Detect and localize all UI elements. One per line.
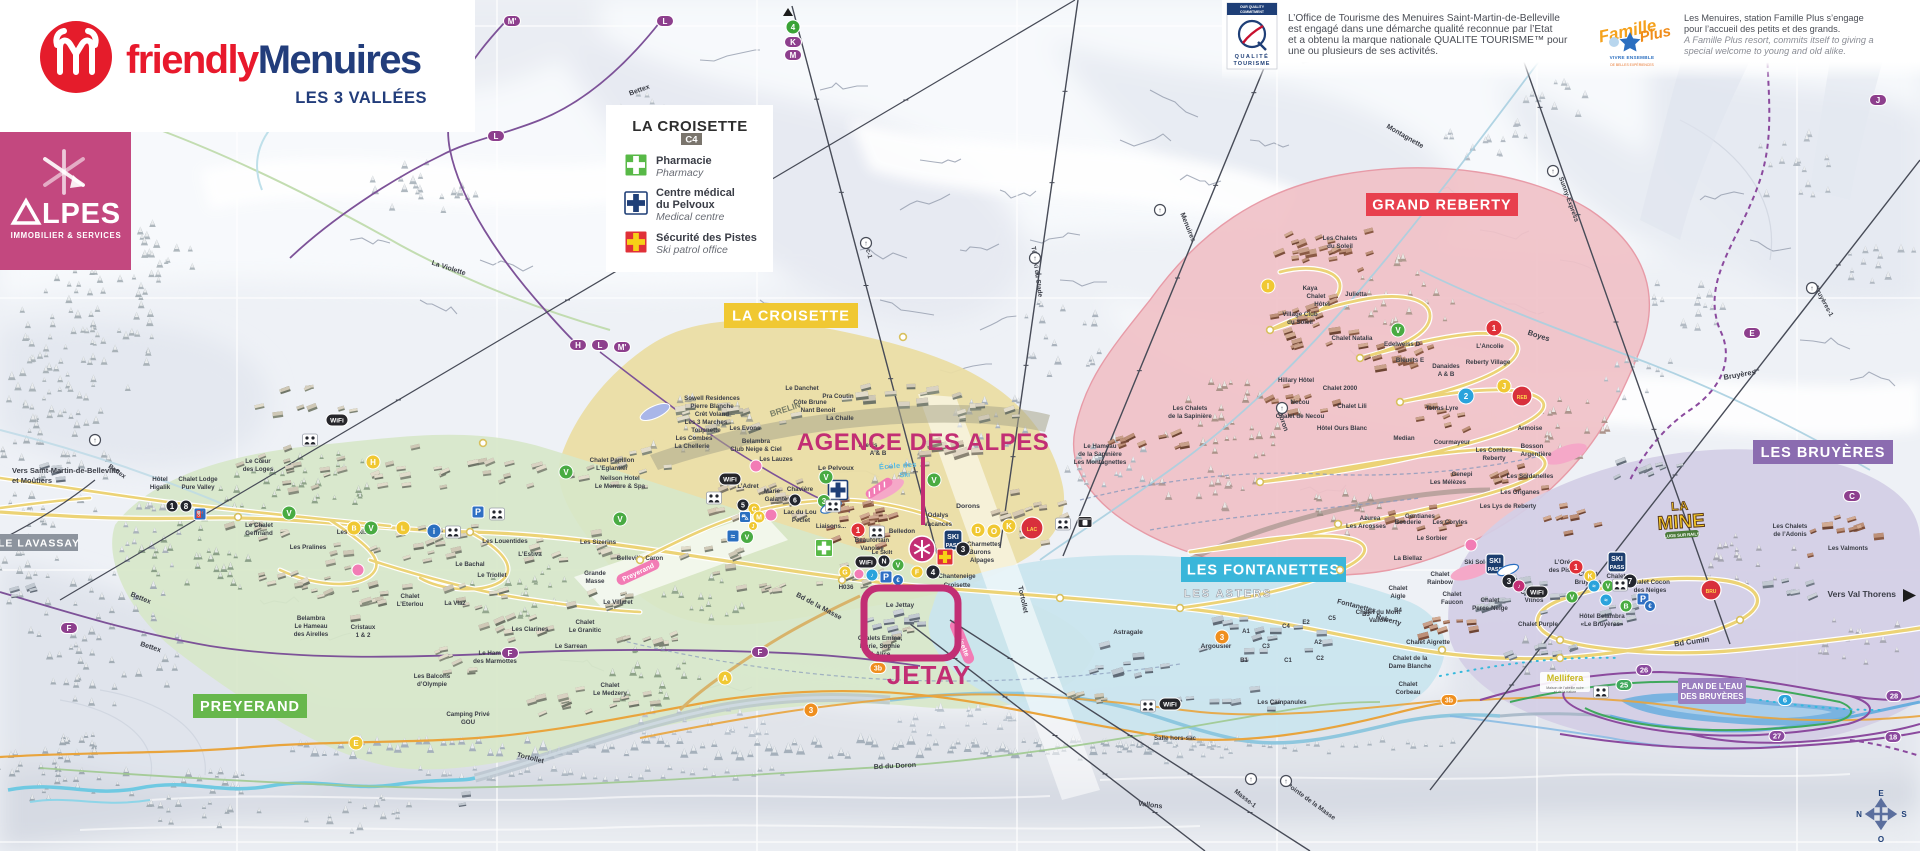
svg-text:3b: 3b — [1445, 697, 1453, 704]
svg-text:Les Campanules: Les Campanules — [1257, 699, 1307, 706]
svg-text:des Loges: des Loges — [243, 466, 274, 473]
svg-text:Les Clarines: Les Clarines — [512, 626, 549, 633]
svg-text:27: 27 — [1773, 732, 1781, 741]
svg-text:PLAN DE L’EAU: PLAN DE L’EAU — [1682, 682, 1743, 691]
svg-text:E: E — [1878, 789, 1884, 798]
svg-text:H: H — [575, 341, 581, 350]
svg-text:Hillary Hôtel: Hillary Hôtel — [1278, 377, 1314, 384]
svg-text:Reberty: Reberty — [1482, 455, 1506, 462]
svg-text:Toupnette: Toupnette — [691, 427, 721, 434]
svg-text:Pra Coutin: Pra Coutin — [822, 393, 854, 400]
svg-text:LA CROISETTE: LA CROISETTE — [732, 309, 850, 325]
svg-text:K: K — [1006, 522, 1012, 531]
svg-text:Chalet: Chalet — [401, 593, 420, 600]
svg-text:Genepi: Genepi — [1452, 471, 1473, 478]
svg-text:Le Medzery: Le Medzery — [593, 690, 627, 697]
svg-text:Belambra: Belambra — [297, 615, 326, 622]
svg-text:IMMOBILIER & SERVICES: IMMOBILIER & SERVICES — [11, 231, 122, 240]
svg-text:L’Office de Tourisme des Menui: L’Office de Tourisme des Menuires Saint-… — [1288, 13, 1560, 24]
svg-text:L: L — [494, 132, 499, 141]
svg-text:J: J — [1502, 382, 1506, 391]
svg-text:Hôtel: Hôtel — [152, 476, 168, 483]
svg-text:Le Triollet: Le Triollet — [477, 572, 506, 579]
svg-text:Crêt Voland: Crêt Voland — [695, 411, 729, 418]
svg-text:Chalet 2000: Chalet 2000 — [1323, 385, 1358, 392]
svg-text:4: 4 — [791, 23, 796, 32]
svg-text:OUR QUALITY: OUR QUALITY — [1240, 5, 1265, 9]
svg-text:P: P — [883, 572, 889, 582]
svg-text:Camping Privé: Camping Privé — [446, 711, 490, 718]
svg-text:C3: C3 — [1262, 644, 1270, 650]
svg-text:Higalik: Higalik — [150, 484, 171, 491]
svg-text:Chalet: Chalet — [1431, 571, 1450, 578]
svg-text:Les Lauzes: Les Lauzes — [759, 456, 793, 463]
svg-text:Liaisons...: Liaisons... — [816, 523, 847, 530]
svg-text:V: V — [1570, 595, 1575, 602]
svg-text:Medical centre: Medical centre — [656, 211, 724, 223]
svg-text:↑: ↑ — [1033, 256, 1037, 263]
svg-text:Le Hameau: Le Hameau — [1083, 443, 1116, 450]
svg-text:et Moûtiers: et Moûtiers — [12, 476, 52, 485]
svg-text:WiFi: WiFi — [859, 560, 873, 567]
svg-text:Pharmacy: Pharmacy — [656, 167, 704, 179]
svg-text:Le Villaret: Le Villaret — [603, 599, 632, 606]
svg-text:K: K — [790, 38, 796, 47]
svg-text:Salle hors-sac: Salle hors-sac — [1154, 735, 1197, 742]
svg-text:Chalet Papillon: Chalet Papillon — [590, 457, 635, 464]
svg-text:Faucon: Faucon — [1441, 599, 1463, 606]
svg-text:≈: ≈ — [731, 532, 736, 541]
svg-text:Marie: Marie — [764, 488, 781, 495]
svg-text:Le Cœur: Le Cœur — [245, 458, 271, 465]
svg-text:Le Sarrean: Le Sarrean — [555, 643, 587, 650]
svg-text:Lac du Lou: Lac du Lou — [784, 509, 817, 516]
svg-text:Chalet: Chalet — [1399, 681, 1418, 688]
svg-text:Les Mélèzes: Les Mélèzes — [1430, 479, 1467, 486]
svg-text:G: G — [842, 570, 848, 577]
svg-text:Pierre Blanche: Pierre Blanche — [690, 403, 734, 410]
svg-text:⛽: ⛽ — [196, 510, 205, 519]
svg-text:Alpages: Alpages — [970, 557, 995, 564]
svg-text:Les Origanes: Les Origanes — [1500, 489, 1540, 496]
svg-text:4: 4 — [931, 568, 936, 577]
svg-text:Corbeau: Corbeau — [1395, 689, 1420, 696]
svg-text:3: 3 — [1507, 577, 1512, 586]
svg-text:L: L — [598, 341, 603, 350]
svg-text:A Famille Plus resort, commits: A Famille Plus resort, commits itself to… — [1683, 35, 1874, 45]
svg-text:Belledon: Belledon — [889, 528, 915, 535]
svg-text:V: V — [286, 509, 292, 518]
svg-text:LPES: LPES — [42, 198, 121, 230]
svg-text:Sécurité des Pistes: Sécurité des Pistes — [656, 232, 757, 244]
svg-text:O: O — [1878, 835, 1884, 844]
svg-text:pour l’accueil des petits et d: pour l’accueil des petits et des grands. — [1684, 24, 1840, 34]
svg-text:I: I — [1267, 282, 1269, 291]
svg-text:M': M' — [618, 343, 627, 352]
svg-text:Chalet Lodge: Chalet Lodge — [178, 476, 218, 483]
svg-text:SKI: SKI — [947, 534, 959, 541]
svg-text:K: K — [1587, 574, 1592, 581]
svg-text:AGENCE DES ALPES: AGENCE DES ALPES — [797, 429, 1050, 456]
svg-text:WiFi: WiFi — [1530, 590, 1544, 597]
svg-text:↑: ↑ — [1158, 208, 1162, 215]
svg-text:Chalet de la: Chalet de la — [1393, 655, 1428, 662]
svg-text:une ou plusieurs de ses activi: une ou plusieurs de ses activités. — [1288, 46, 1438, 57]
svg-text:Le Danchet: Le Danchet — [785, 385, 818, 392]
svg-text:♪: ♪ — [871, 573, 874, 579]
svg-text:Burons: Burons — [969, 549, 991, 556]
svg-text:Les Chalets: Les Chalets — [1773, 523, 1808, 530]
svg-text:E2: E2 — [1302, 620, 1310, 626]
svg-text:A & B: A & B — [1438, 371, 1455, 378]
svg-text:Tetras Lyre: Tetras Lyre — [1426, 405, 1459, 412]
svg-text:Chavière: Chavière — [787, 486, 814, 493]
svg-text:est engagé dans une démarche q: est engagé dans une démarche qualité rec… — [1288, 24, 1553, 35]
svg-text:La Challe: La Challe — [826, 415, 854, 422]
svg-text:Les Soldanelles: Les Soldanelles — [1507, 473, 1554, 480]
svg-text:PREYERAND: PREYERAND — [200, 699, 300, 715]
svg-text:REB: REB — [1517, 395, 1528, 401]
svg-text:GOU: GOU — [461, 719, 476, 726]
svg-text:H036: H036 — [839, 584, 854, 591]
svg-text:Median: Median — [1393, 435, 1415, 442]
svg-text:C4: C4 — [1282, 624, 1290, 630]
svg-text:3: 3 — [809, 706, 814, 715]
svg-text:JETAY: JETAY — [887, 660, 972, 690]
svg-text:J: J — [1876, 96, 1880, 105]
svg-text:Chalet: Chalet — [1481, 597, 1500, 604]
svg-text:Peclet: Peclet — [792, 517, 810, 524]
svg-text:⛍: ⛍ — [741, 515, 749, 522]
svg-text:C2: C2 — [1316, 656, 1324, 662]
svg-text:5: 5 — [741, 503, 745, 510]
svg-text:1: 1 — [856, 526, 861, 535]
svg-text:Chalet Purple: Chalet Purple — [1518, 621, 1558, 628]
svg-text:Azurea: Azurea — [1360, 515, 1381, 522]
svg-text:La Biellaz: La Biellaz — [1394, 555, 1423, 562]
svg-text:P: P — [475, 507, 481, 517]
svg-text:Edelweiss D: Edelweiss D — [1384, 341, 1421, 348]
svg-text:GRAND REBERTY: GRAND REBERTY — [1372, 198, 1511, 214]
svg-text:«Le Bruyères»: «Le Bruyères» — [1581, 621, 1624, 628]
svg-text:Le Hameau: Le Hameau — [294, 623, 327, 630]
svg-text:1: 1 — [1574, 563, 1579, 572]
svg-text:E: E — [1749, 329, 1755, 338]
svg-text:V: V — [931, 476, 937, 485]
svg-text:Mellifera: Mellifera — [1547, 673, 1585, 683]
svg-text:Les Lys de Reberty: Les Lys de Reberty — [1480, 503, 1537, 510]
svg-text:Vers Val Thorens: Vers Val Thorens — [1827, 589, 1896, 599]
svg-text:Les Menuires, station Famille: Les Menuires, station Famille Plus s’eng… — [1684, 13, 1864, 23]
svg-text:et de la nature: et de la nature — [1554, 690, 1576, 694]
svg-text:D: D — [975, 526, 981, 535]
svg-text:et a obtenu la marque national: et a obtenu la marque nationale QUALITE … — [1288, 35, 1568, 46]
svg-text:↑: ↑ — [1249, 777, 1253, 784]
svg-text:Les Coryles: Les Coryles — [1432, 519, 1468, 526]
svg-text:Vers Saint-Martin-de-Bellevill: Vers Saint-Martin-de-Belleville — [12, 466, 120, 475]
svg-text:Sowell Residences: Sowell Residences — [684, 395, 740, 402]
svg-text:F: F — [67, 624, 72, 633]
svg-text:Le Bachal: Le Bachal — [455, 561, 485, 568]
svg-text:du Pelvoux: du Pelvoux — [656, 199, 716, 211]
svg-text:M': M' — [508, 17, 517, 26]
svg-text:WiFi: WiFi — [330, 418, 344, 425]
svg-text:1: 1 — [1492, 324, 1497, 333]
svg-text:Rainbow: Rainbow — [1427, 579, 1453, 586]
svg-text:M: M — [756, 515, 762, 522]
svg-text:N: N — [881, 559, 886, 566]
svg-text:LAC: LAC — [1027, 527, 1038, 533]
svg-text:Le Menure & Spa: Le Menure & Spa — [595, 483, 646, 490]
svg-text:Les Louentides: Les Louentides — [482, 538, 528, 545]
svg-text:C4: C4 — [685, 135, 698, 146]
svg-text:3b: 3b — [874, 665, 882, 672]
svg-text:Charmettes: Charmettes — [967, 541, 1002, 548]
svg-text:L’Ancolie: L’Ancolie — [1476, 343, 1504, 350]
svg-text:des Airelles: des Airelles — [294, 631, 329, 638]
svg-text:LA CROISETTE: LA CROISETTE — [632, 118, 747, 135]
svg-text:Chalet: Chalet — [601, 682, 620, 689]
svg-text:Le Chalet: Le Chalet — [245, 522, 273, 529]
svg-text:Hôtel Ours Blanc: Hôtel Ours Blanc — [1317, 425, 1368, 432]
svg-text:Les Chalets: Les Chalets — [1323, 235, 1358, 242]
svg-text:Kaya: Kaya — [1303, 285, 1318, 292]
svg-text:3: 3 — [961, 545, 966, 554]
svg-text:TOURISME: TOURISME — [1234, 61, 1271, 67]
svg-text:Les Chalets: Les Chalets — [1173, 405, 1208, 412]
svg-text:de la Sapinière: de la Sapinière — [1078, 451, 1122, 458]
svg-text:Les Valmonts: Les Valmonts — [1828, 545, 1868, 552]
svg-text:Dorons: Dorons — [956, 503, 980, 510]
svg-text:V: V — [823, 473, 829, 482]
svg-text:LES FONTANETTES: LES FONTANETTES — [1187, 563, 1340, 579]
svg-text:M: M — [790, 51, 797, 60]
svg-text:L’Estiva: L’Estiva — [518, 551, 542, 558]
svg-text:du Soleil: du Soleil — [1327, 243, 1353, 250]
svg-text:V: V — [368, 524, 374, 533]
svg-text:V: V — [896, 563, 901, 570]
svg-text:8: 8 — [184, 502, 189, 511]
svg-text:Le Jettay: Le Jettay — [886, 602, 915, 609]
svg-text:Julietta: Julietta — [1345, 291, 1367, 298]
svg-text:B4: B4 — [1394, 608, 1402, 614]
svg-text:Chalet Aigrette: Chalet Aigrette — [1406, 639, 1450, 646]
svg-text:WiFi: WiFi — [723, 477, 737, 484]
svg-text:Pure Valley: Pure Valley — [181, 484, 215, 491]
svg-text:V: V — [745, 535, 750, 542]
svg-text:E: E — [353, 739, 359, 748]
svg-text:Pharmacie: Pharmacie — [656, 155, 712, 167]
svg-text:La Chellerie: La Chellerie — [674, 443, 710, 450]
svg-text:A2: A2 — [1314, 640, 1322, 646]
svg-text:La Vlaz: La Vlaz — [444, 600, 465, 607]
svg-text:J: J — [752, 524, 755, 530]
svg-text:Les Combes: Les Combes — [1476, 447, 1513, 454]
svg-text:Reberty Village: Reberty Village — [1466, 359, 1511, 366]
svg-text:Astragale: Astragale — [1113, 629, 1143, 636]
svg-text:Aigle: Aigle — [1390, 593, 1406, 600]
svg-text:7: 7 — [1628, 577, 1633, 586]
svg-text:Danaides: Danaides — [1432, 363, 1460, 370]
svg-text:de la Sapinière: de la Sapinière — [1168, 413, 1212, 420]
svg-text:↑: ↑ — [1280, 406, 1284, 413]
svg-text:Centre médical: Centre médical — [656, 187, 735, 199]
svg-text:SKI: SKI — [1611, 556, 1623, 563]
svg-text:BRU: BRU — [1706, 589, 1717, 595]
svg-text:↑: ↑ — [1810, 286, 1814, 293]
svg-text:A1: A1 — [1242, 629, 1250, 635]
svg-text:B3: B3 — [1362, 612, 1370, 618]
svg-text:Perce-Neige: Perce-Neige — [1472, 605, 1508, 612]
svg-text:V: V — [1395, 326, 1401, 335]
svg-text:Les Montagnettes: Les Montagnettes — [1074, 459, 1127, 466]
svg-text:LES 3 VALLÉES: LES 3 VALLÉES — [295, 88, 427, 107]
svg-text:Chalet: Chalet — [576, 619, 595, 626]
svg-text:L: L — [663, 17, 668, 26]
svg-text:Hôtel Belambra: Hôtel Belambra — [1579, 613, 1625, 620]
svg-text:Village Club: Village Club — [1282, 311, 1318, 318]
svg-text:Les Sizerins: Les Sizerins — [580, 539, 617, 546]
svg-text:VIVRE ENSEMBLE: VIVRE ENSEMBLE — [1610, 55, 1655, 60]
svg-text:Chalet Natalia: Chalet Natalia — [1332, 335, 1373, 342]
svg-text:LES ASTERS: LES ASTERS — [1184, 588, 1273, 600]
svg-text:WiFi: WiFi — [1163, 702, 1177, 709]
svg-text:Courmayeur: Courmayeur — [1434, 439, 1471, 446]
svg-text:special welcome to young and o: special welcome to young and old alike. — [1684, 46, 1846, 56]
svg-text:Les 3 Marches: Les 3 Marches — [685, 419, 728, 426]
svg-text:25: 25 — [1620, 681, 1628, 690]
svg-text:DES BRUYÈRES: DES BRUYÈRES — [1680, 692, 1744, 701]
svg-text:QUALITÉ: QUALITÉ — [1235, 52, 1270, 60]
svg-text:Argousier: Argousier — [1201, 643, 1232, 650]
svg-text:C: C — [1849, 492, 1855, 501]
svg-text:Les Balcons: Les Balcons — [414, 673, 451, 680]
svg-text:DE BELLES EXPÉRIENCES: DE BELLES EXPÉRIENCES — [1610, 62, 1654, 67]
svg-text:Ski: Ski — [899, 472, 910, 480]
svg-text:6: 6 — [1783, 696, 1787, 705]
svg-text:LES BRUYÈRES: LES BRUYÈRES — [1761, 444, 1886, 461]
svg-text:↑: ↑ — [864, 241, 868, 248]
svg-text:A: A — [722, 674, 728, 683]
svg-text:Les Pralines: Les Pralines — [290, 544, 327, 551]
svg-text:LE LAVASSAY: LE LAVASSAY — [0, 537, 80, 549]
svg-text:Chalet: Chalet — [1389, 585, 1408, 592]
svg-text:♪: ♪ — [1518, 584, 1521, 590]
svg-text:1: 1 — [170, 502, 175, 511]
svg-text:Les Arcosses: Les Arcosses — [1346, 523, 1387, 530]
svg-text:L’Eterlou: L’Eterlou — [397, 601, 424, 608]
svg-text:friendlyMenuires: friendlyMenuires — [126, 38, 421, 82]
svg-text:i: i — [433, 527, 435, 536]
svg-text:↑: ↑ — [93, 438, 97, 445]
svg-text:V: V — [617, 515, 623, 524]
svg-text:du Soleil: du Soleil — [1287, 319, 1313, 326]
svg-text:B: B — [1623, 604, 1628, 611]
svg-text:Vacances: Vacances — [924, 521, 953, 528]
svg-text:Chalet: Chalet — [1307, 293, 1326, 300]
svg-text:↑: ↑ — [1284, 779, 1288, 786]
svg-text:L: L — [401, 526, 406, 533]
svg-text:Hôtel: Hôtel — [1314, 301, 1330, 308]
svg-text:O: O — [991, 527, 997, 536]
svg-text:Les Evons: Les Evons — [730, 425, 762, 432]
svg-text:26: 26 — [1640, 666, 1648, 675]
svg-text:6: 6 — [793, 498, 797, 505]
svg-text:H: H — [370, 458, 376, 467]
svg-text:Argentière: Argentière — [1521, 451, 1553, 458]
svg-text:Le Granitic: Le Granitic — [569, 627, 602, 634]
svg-text:des Marmottes: des Marmottes — [473, 658, 517, 665]
svg-text:↑: ↑ — [1551, 169, 1555, 176]
svg-text:Armoise: Armoise — [1518, 425, 1543, 432]
svg-text:F: F — [915, 570, 920, 577]
svg-text:Neilson Hotel: Neilson Hotel — [600, 475, 640, 482]
svg-text:Chanteneige: Chanteneige — [938, 573, 976, 580]
svg-text:Bosson: Bosson — [1521, 443, 1544, 450]
svg-text:Grande: Grande — [584, 570, 606, 577]
svg-text:28: 28 — [1890, 692, 1898, 701]
svg-text:Cristaux: Cristaux — [351, 624, 376, 631]
svg-text:2: 2 — [1464, 392, 1469, 401]
svg-text:Galante: Galante — [765, 496, 788, 503]
svg-text:3: 3 — [1220, 633, 1225, 642]
svg-text:L’Adret: L’Adret — [737, 483, 758, 490]
svg-text:V: V — [563, 468, 569, 477]
svg-text:d’Olympie: d’Olympie — [417, 681, 447, 688]
svg-text:Club Neige & Ciel: Club Neige & Ciel — [730, 446, 782, 453]
svg-text:Boederie: Boederie — [1395, 519, 1422, 526]
svg-text:C1: C1 — [1284, 658, 1292, 664]
svg-text:COMMITMENT: COMMITMENT — [1240, 10, 1265, 14]
svg-text:Necou: Necou — [1291, 399, 1310, 406]
svg-text:B1: B1 — [1240, 658, 1248, 664]
svg-text:de l’Adonis: de l’Adonis — [1773, 531, 1807, 538]
svg-text:Nant Benoit: Nant Benoit — [801, 407, 836, 414]
svg-text:B: B — [351, 526, 356, 533]
svg-text:PASS: PASS — [1610, 565, 1625, 571]
svg-text:Chalet Lili: Chalet Lili — [1337, 403, 1367, 410]
svg-text:Masse: Masse — [586, 578, 605, 585]
svg-text:Belambra: Belambra — [742, 438, 771, 445]
svg-text:Chalet: Chalet — [1443, 591, 1462, 598]
svg-text:N: N — [1856, 810, 1862, 819]
svg-text:Le Sorbier: Le Sorbier — [1417, 535, 1448, 542]
svg-text:C5: C5 — [1328, 616, 1336, 622]
svg-text:F: F — [508, 649, 513, 658]
svg-text:S: S — [1901, 810, 1907, 819]
svg-text:1 & 2: 1 & 2 — [356, 632, 371, 639]
svg-text:Bleuets E: Bleuets E — [1396, 357, 1424, 364]
svg-text:18: 18 — [1889, 733, 1897, 742]
svg-text:Odalys: Odalys — [928, 512, 949, 519]
svg-text:Ski patrol office: Ski patrol office — [656, 244, 728, 256]
svg-text:SKI: SKI — [1489, 558, 1501, 565]
svg-text:Dame Blanche: Dame Blanche — [1389, 663, 1432, 670]
svg-text:Les Combes: Les Combes — [676, 435, 713, 442]
svg-text:V: V — [1606, 584, 1611, 591]
svg-text:Geffriand: Geffriand — [245, 530, 273, 537]
svg-text:F: F — [758, 648, 763, 657]
svg-text:L’Eglantier: L’Eglantier — [596, 465, 628, 472]
